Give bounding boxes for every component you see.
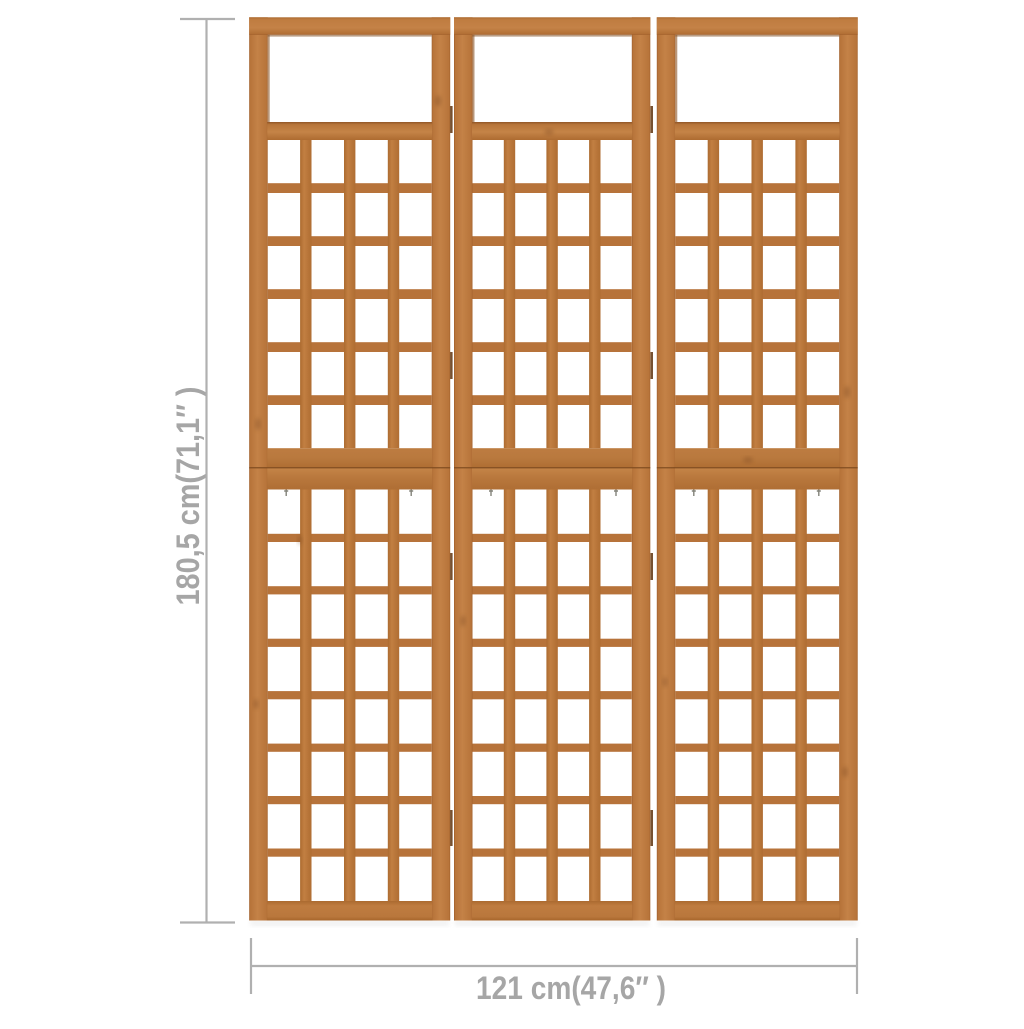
svg-text:121 cm(47,6″ ): 121 cm(47,6″ ): [476, 970, 666, 1006]
svg-text:180,5 cm(71,1″ ): 180,5 cm(71,1″ ): [170, 387, 206, 606]
